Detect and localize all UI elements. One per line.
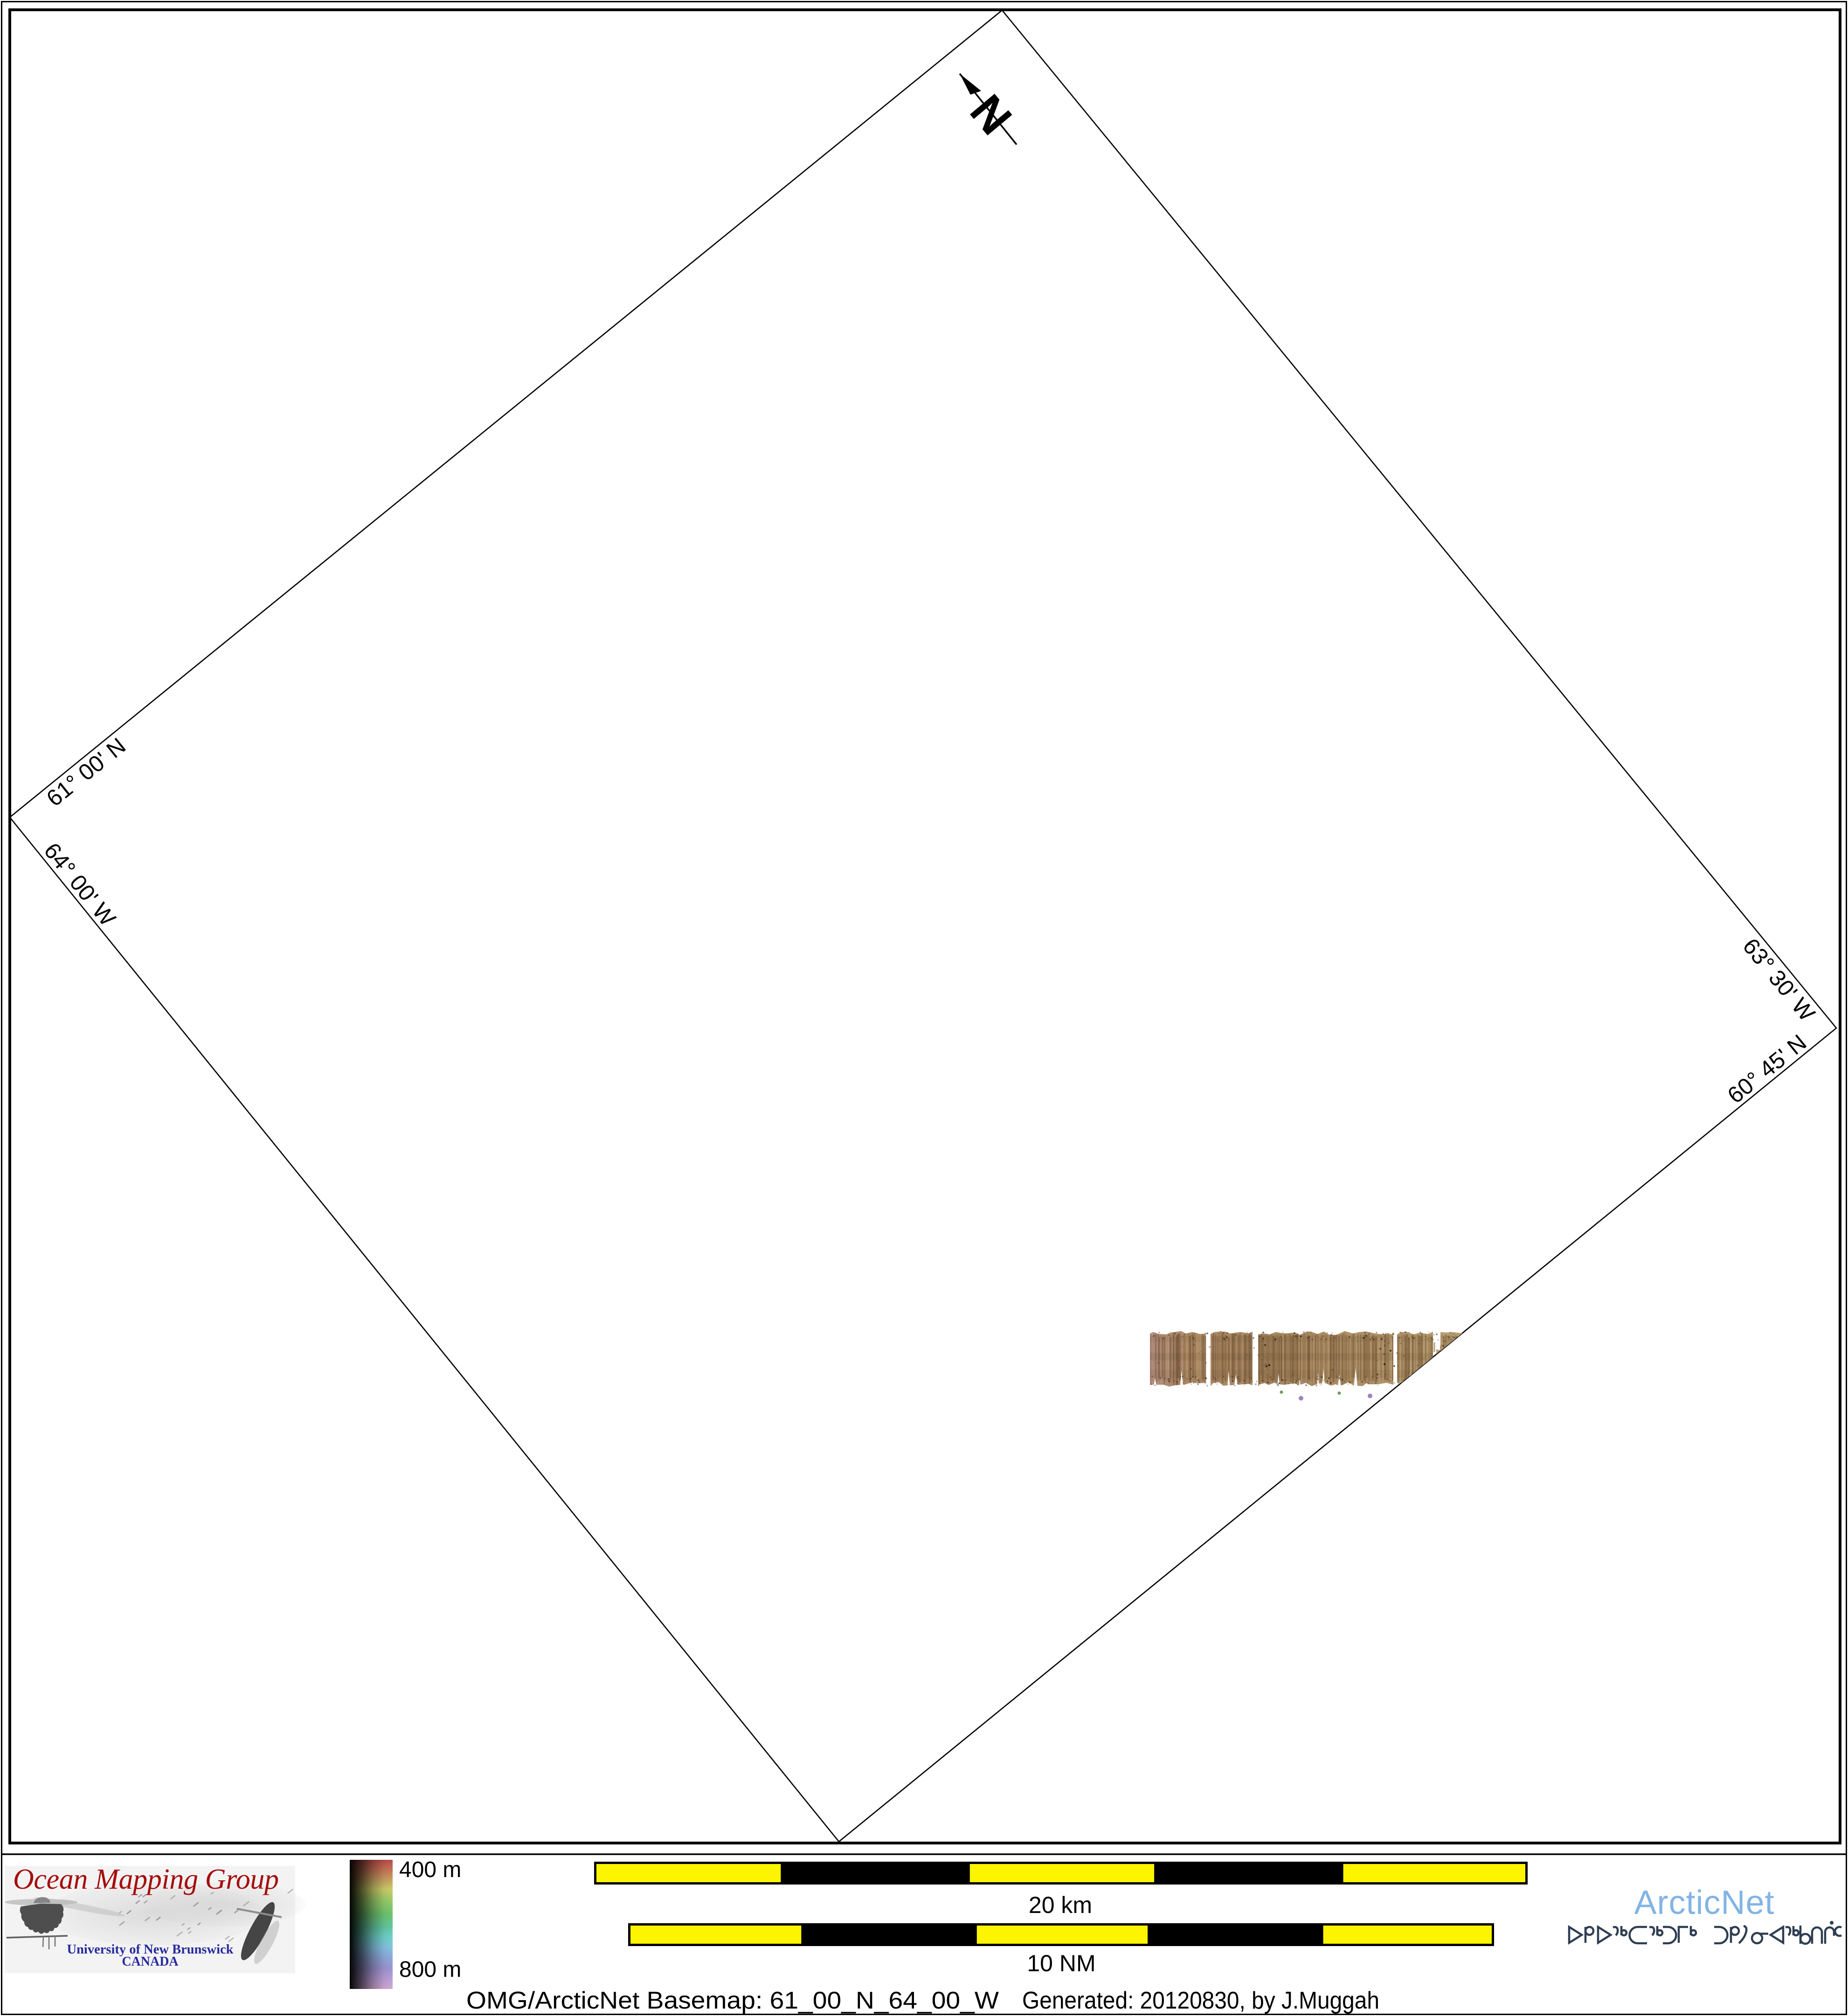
svg-text:400 m: 400 m — [399, 1857, 461, 1882]
svg-text:63° 30' W: 63° 30' W — [1737, 934, 1820, 1026]
svg-text:OMG/ArcticNet Basemap: 61_00_N: OMG/ArcticNet Basemap: 61_00_N_64_00_W — [466, 1987, 999, 2014]
svg-text:800 m: 800 m — [399, 1957, 461, 1982]
svg-text:N: N — [960, 85, 1022, 144]
svg-text:Ocean Mapping Group: Ocean Mapping Group — [13, 1864, 279, 1895]
svg-text:64° 00' W: 64° 00' W — [39, 838, 120, 931]
svg-text:10 NM: 10 NM — [1027, 1950, 1095, 1976]
svg-text:61° 00' N: 61° 00' N — [42, 733, 131, 812]
svg-text:20 km: 20 km — [1029, 1892, 1092, 1918]
svg-text:ArcticNet: ArcticNet — [1634, 1884, 1774, 1921]
svg-text:60° 45' N: 60° 45' N — [1723, 1030, 1812, 1109]
svg-text:CANADA: CANADA — [122, 1954, 179, 1969]
svg-text:Generated: 20120830, by J.Mugg: Generated: 20120830, by J.Muggah — [1022, 1987, 1379, 2014]
